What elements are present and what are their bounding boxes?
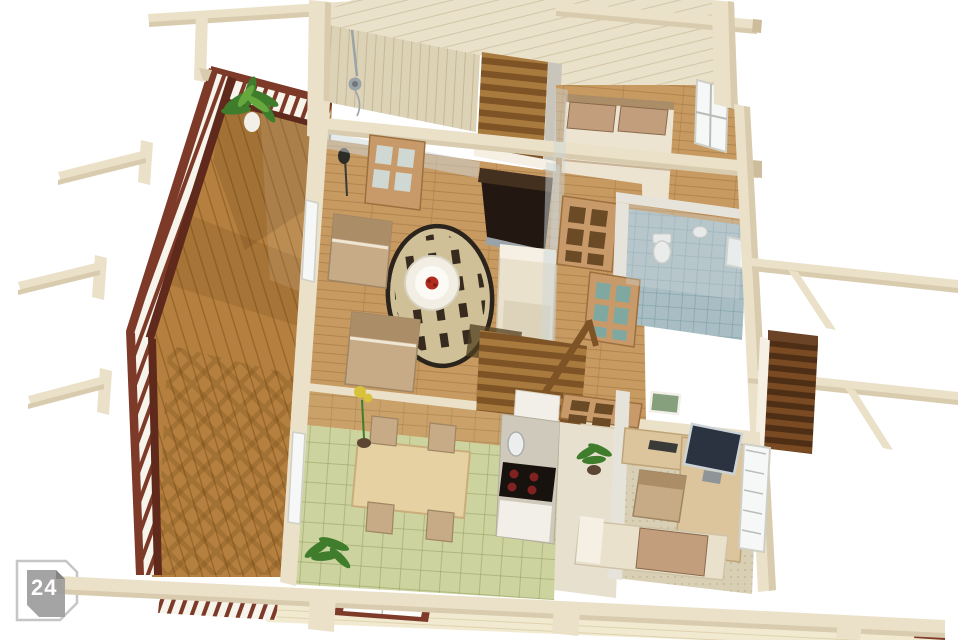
deck-post-beam-b [18,255,107,300]
deck-railing-left-lower [126,331,162,575]
coffee-table [405,256,459,310]
dining-chair [366,502,394,534]
deck-post-beam-c [28,368,112,415]
exterior-staircase [755,330,818,454]
armchair-2 [345,312,420,392]
right-beam-upper [752,258,958,330]
dining-chair [426,510,454,542]
deck-post-beam-a [58,140,153,185]
office-picture [650,392,680,414]
pillow-left [567,102,616,132]
floorplan-3d-render: 24 [0,0,960,640]
office-chair [633,470,686,522]
badge: 24 [27,570,65,617]
badge-number: 24 [31,575,57,600]
pillow-right [618,106,668,135]
glass-wall-wc [626,204,742,300]
bathroom-door [365,135,425,210]
hall-door [557,196,618,272]
dining-chair [370,416,398,446]
flower-centerpiece [426,277,439,290]
dining-chair [428,423,456,453]
armchair-1 [328,214,392,288]
kitchen-cabinet [497,500,552,542]
tv-cabinet [478,168,553,257]
kitchen-sink [508,432,524,456]
office-window [739,444,770,552]
stove-cooktop [499,462,556,502]
